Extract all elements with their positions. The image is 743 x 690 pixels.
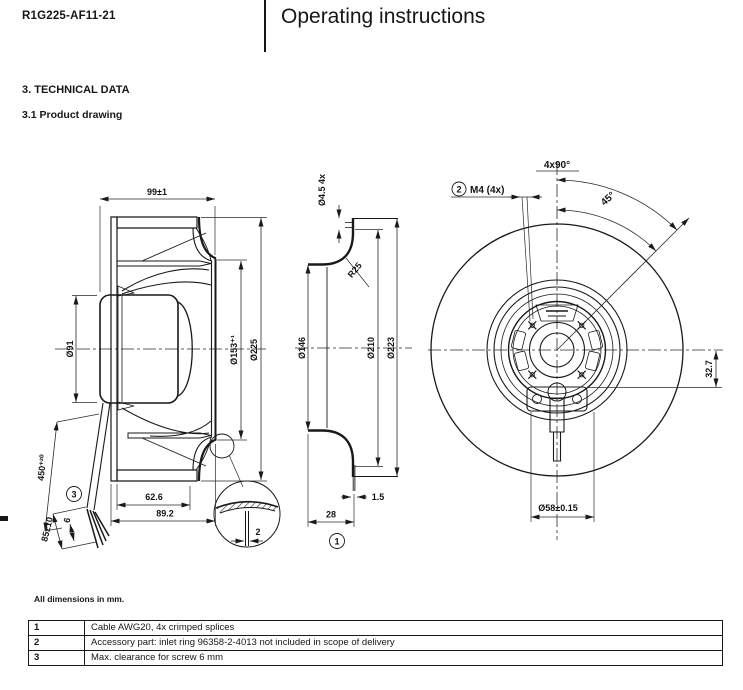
dim-strip-length: 6 xyxy=(62,517,73,524)
row-description: Cable AWG20, 4x crimped splices xyxy=(85,621,722,635)
dim-sheet-thickness: 1.5 xyxy=(372,492,385,502)
dim-ring-outer-diameter: Ø223 xyxy=(386,337,396,359)
dim-ring-depth: 28 xyxy=(326,510,336,520)
dim-inner-diameter: Ø146 xyxy=(297,337,307,359)
callout-3: 3 xyxy=(71,490,76,500)
row-description: Max. clearance for screw 6 mm xyxy=(85,651,722,665)
row-description: Accessory part: inlet ring 96358-2-4013 … xyxy=(85,636,722,650)
inlet-ring-view: Ø4.5 4x R25 Ø146 Ø210 Ø223 1.5 28 1 xyxy=(295,174,412,549)
dim-cable-length: 450⁺²⁰ xyxy=(36,454,49,482)
dim-hole-pattern: 4x90° xyxy=(544,160,570,171)
table-row: 1 Cable AWG20, 4x crimped splices xyxy=(29,621,722,635)
dim-motor-diameter: Ø91 xyxy=(65,340,75,357)
document-page: R1G225-AF11-21 Operating instructions 3.… xyxy=(0,0,743,690)
front-view: 4x90° 45° 2 M4 (4x) 32.7 Ø58±0.15 xyxy=(428,160,723,540)
side-section-view: 2 99±1 Ø91 Ø153⁺¹ Ø225 62.6 xyxy=(36,187,280,549)
table-row: 3 Max. clearance for screw 6 mm xyxy=(29,650,722,665)
callout-1: 1 xyxy=(334,537,339,547)
dim-hub-depth: 62.6 xyxy=(145,492,163,502)
cable xyxy=(87,403,110,548)
row-number: 3 xyxy=(29,651,85,665)
dim-bolt-circle: Ø210 xyxy=(366,337,376,359)
dim-flange-holes: Ø4.5 4x xyxy=(317,174,327,206)
dim-hub-diameter: Ø58±0.15 xyxy=(538,503,577,513)
dim-angle-45: 45° xyxy=(599,190,618,208)
dim-thread: M4 (4x) xyxy=(470,185,504,196)
dimensions-note: All dimensions in mm. xyxy=(34,594,124,604)
dim-splice-length: 85±10 xyxy=(39,516,55,543)
row-number: 2 xyxy=(29,636,85,650)
dim-inlet-diameter: Ø153⁺¹ xyxy=(229,335,239,365)
legend-table: 1 Cable AWG20, 4x crimped splices 2 Acce… xyxy=(28,620,723,666)
dim-depth: 99±1 xyxy=(147,187,167,197)
edge-detail-circle: 2 xyxy=(214,481,280,547)
dim-housing-depth: 89.2 xyxy=(156,509,174,519)
dim-edge-thickness: 2 xyxy=(255,527,260,537)
product-drawing: 2 99±1 Ø91 Ø153⁺¹ Ø225 62.6 xyxy=(0,0,743,690)
row-number: 1 xyxy=(29,621,85,635)
callout-2: 2 xyxy=(456,185,461,195)
dim-axis-offset: 32.7 xyxy=(704,360,714,378)
table-row: 2 Accessory part: inlet ring 96358-2-401… xyxy=(29,635,722,650)
dim-outer-diameter: Ø225 xyxy=(249,339,259,361)
